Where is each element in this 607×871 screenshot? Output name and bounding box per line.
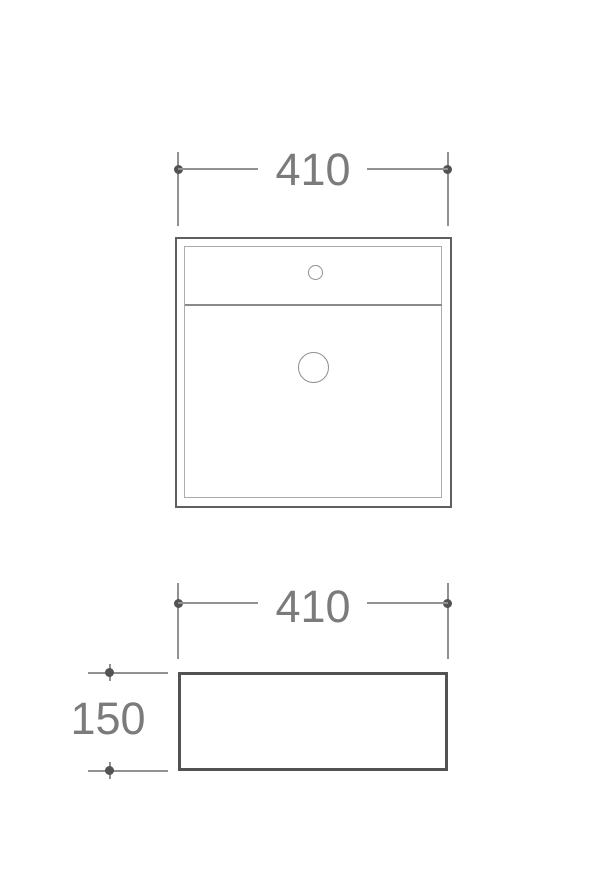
dimension-dot-top <box>105 668 114 677</box>
extension-line-left <box>177 152 179 226</box>
dimension-line-left-segment <box>178 168 258 170</box>
dimension-dot-left <box>174 165 183 174</box>
dimension-line-right-segment <box>367 602 448 604</box>
tap-hole <box>308 265 323 280</box>
extension-line-left <box>177 583 179 659</box>
extension-line-top <box>88 672 168 674</box>
drain-hole <box>298 352 329 383</box>
extension-line-right <box>447 583 449 659</box>
dimension-label-front-height: 150 <box>58 696 158 741</box>
dimension-line-left-segment <box>178 602 258 604</box>
technical-drawing: 410 410 150 <box>0 0 607 871</box>
dimension-dot-left <box>174 599 183 608</box>
dimension-dot-bottom <box>105 766 114 775</box>
dimension-line-right-segment <box>367 168 448 170</box>
extension-line-bottom <box>88 770 168 772</box>
dimension-dot-right <box>443 165 452 174</box>
dimension-label-plan-width: 410 <box>263 147 363 192</box>
extension-line-right <box>447 152 449 226</box>
dimension-dot-right <box>443 599 452 608</box>
dimension-label-front-width: 410 <box>263 584 363 629</box>
front-outline <box>178 672 448 771</box>
deck-divider-line <box>185 304 442 306</box>
